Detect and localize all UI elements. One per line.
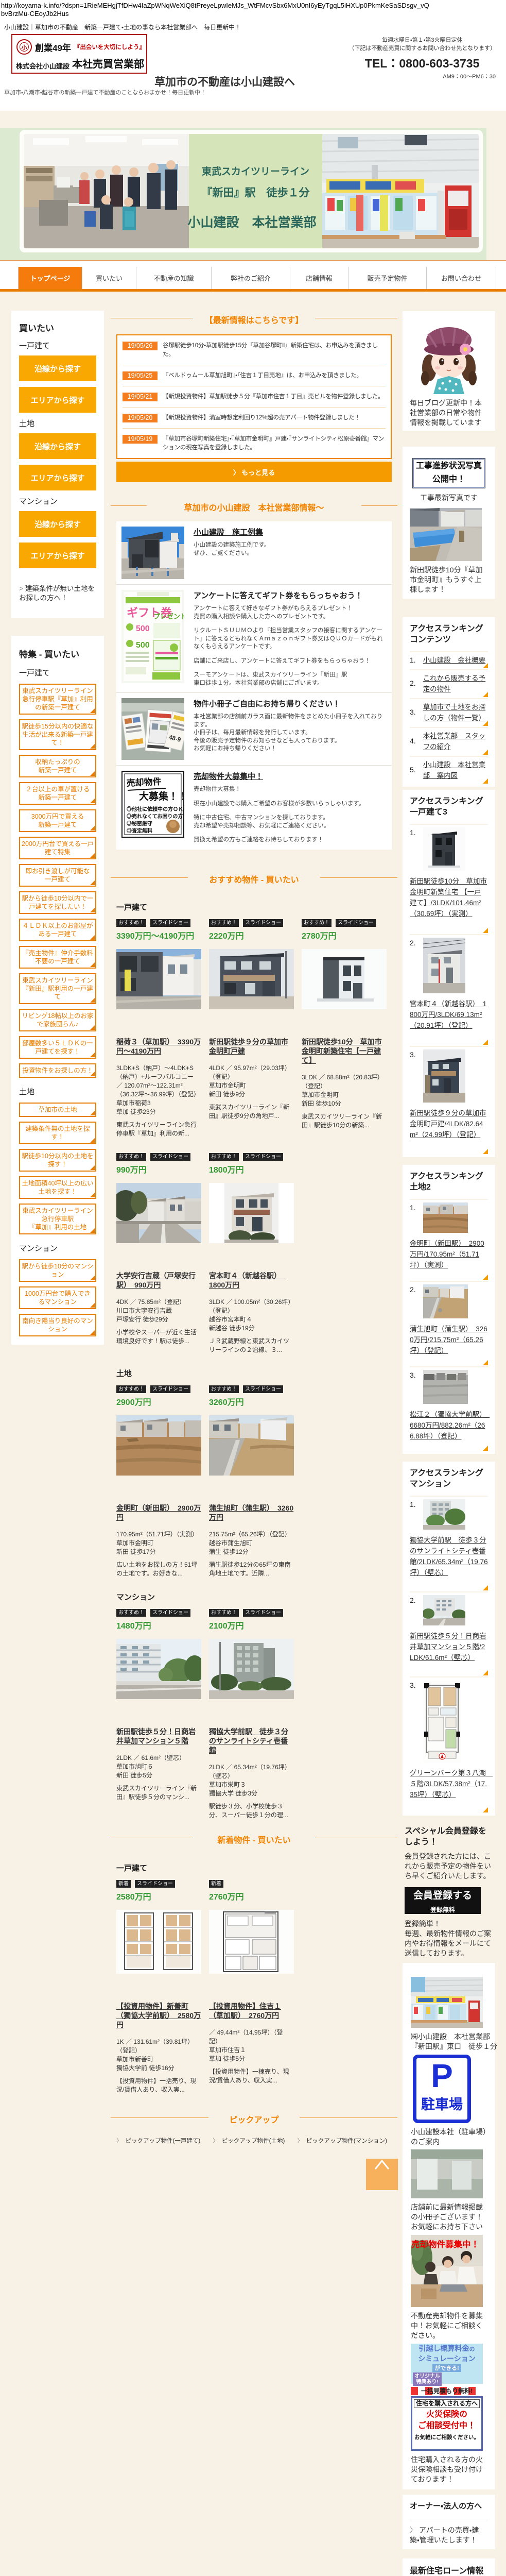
svg-text:◎他社に依頼中の方ＯＫ!!: ◎他社に依頼中の方ＯＫ!!	[127, 806, 184, 812]
svg-text:◎売れなくてお困りの方！: ◎売れなくてお困りの方！	[127, 813, 184, 820]
svg-text:500: 500	[136, 624, 150, 633]
svg-text:◎査定無料: ◎査定無料	[127, 827, 152, 834]
svg-text:500: 500	[136, 641, 150, 650]
svg-text:大募集！！: 大募集！！	[139, 790, 184, 802]
svg-text:売却物件: 売却物件	[126, 776, 162, 788]
svg-text:◎秘密厳守: ◎秘密厳守	[127, 820, 152, 827]
svg-text:プレゼント: プレゼント	[153, 613, 184, 620]
